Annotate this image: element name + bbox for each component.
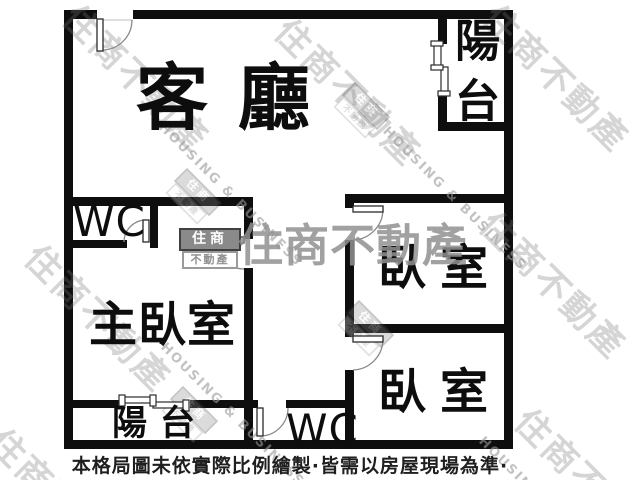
disclaimer-text: 本格局圖未依實際比例繪製·皆需以房屋現場為準·: [60, 451, 520, 478]
room-label-master-bedroom: 主臥室: [89, 301, 236, 349]
room-label-bedroom-upper: 臥室: [378, 244, 502, 292]
entry-door-arc: [102, 20, 132, 50]
entry-door-leaf: [97, 19, 103, 51]
floorplan-canvas: 客廳 陽台 WC 主臥室 臥室 臥室 陽台 WC 住商 不動產 住商不動產 住商…: [0, 0, 640, 480]
balcony-slider-cap: [431, 65, 443, 70]
room-label-balcony-bottom: 陽台: [112, 407, 208, 442]
master-door-arc: [215, 240, 244, 269]
bedroom-upper-door-leaf: [353, 206, 383, 212]
bedroom-lower-door-leaf: [353, 336, 383, 342]
room-label-wc-lower: WC: [286, 409, 359, 451]
wc-lower-door-leaf: [257, 408, 263, 436]
balcony-slider-cap: [431, 41, 443, 46]
master-door-leaf: [214, 237, 244, 243]
room-label-balcony-top: 陽台: [451, 17, 496, 137]
room-label-wc-upper: WC: [73, 201, 146, 243]
balcony-window-panel-1: [122, 397, 154, 403]
room-label-bedroom-lower: 臥室: [378, 368, 502, 416]
room-label-living-room: 客廳: [136, 62, 340, 134]
bedroom-upper-door-arc: [353, 209, 383, 240]
wc-lower-door-arc: [260, 408, 288, 436]
